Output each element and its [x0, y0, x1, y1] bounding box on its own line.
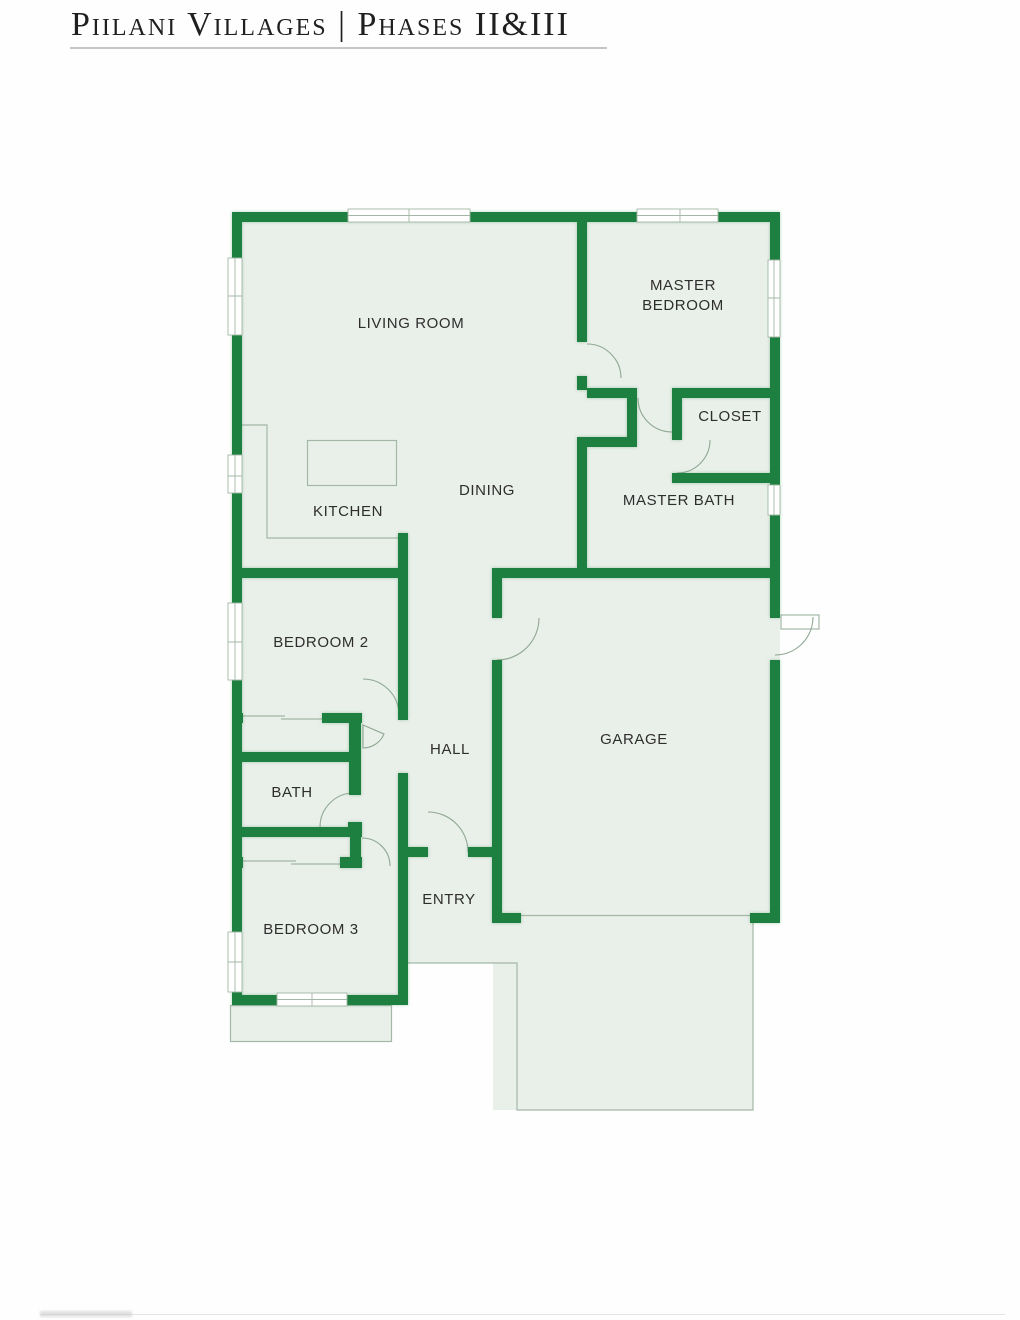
room-label-entry: ENTRY: [422, 890, 476, 910]
master-bath-window: [768, 485, 780, 515]
room-label-master-bath: MASTER BATH: [623, 491, 735, 511]
room-label-closet: CLOSET: [698, 407, 762, 427]
room-label-living-room: LIVING ROOM: [358, 314, 465, 334]
room-label-garage: GARAGE: [600, 730, 668, 750]
living-room-left-window: [228, 258, 242, 335]
scan-artifact-line: [40, 1314, 1005, 1315]
room-label-bedroom2: BEDROOM 2: [273, 633, 368, 653]
room-label-kitchen: KITCHEN: [313, 502, 383, 522]
room-label-master-bedroom: MASTER BEDROOM: [642, 276, 724, 316]
floor-plan-drawing: [0, 0, 1020, 1320]
living-room-top-window: [348, 209, 470, 222]
floor-fill: [230, 212, 780, 1110]
scan-artifact-smudge: [40, 1311, 132, 1317]
bedroom3-left-window: [228, 932, 242, 992]
master-bedroom-top-window: [637, 209, 718, 222]
room-label-bath: BATH: [271, 783, 312, 803]
master-bedroom-line2: BEDROOM: [642, 297, 724, 314]
master-bedroom-line1: MASTER: [650, 277, 716, 294]
bedroom2-window: [228, 603, 242, 680]
room-label-hall: HALL: [430, 740, 470, 760]
room-label-dining: DINING: [459, 481, 515, 501]
room-label-bedroom3: BEDROOM 3: [263, 920, 358, 940]
master-bedroom-right-window: [768, 260, 780, 337]
bedroom3-bottom-window: [277, 993, 347, 1006]
kitchen-window: [228, 455, 242, 493]
